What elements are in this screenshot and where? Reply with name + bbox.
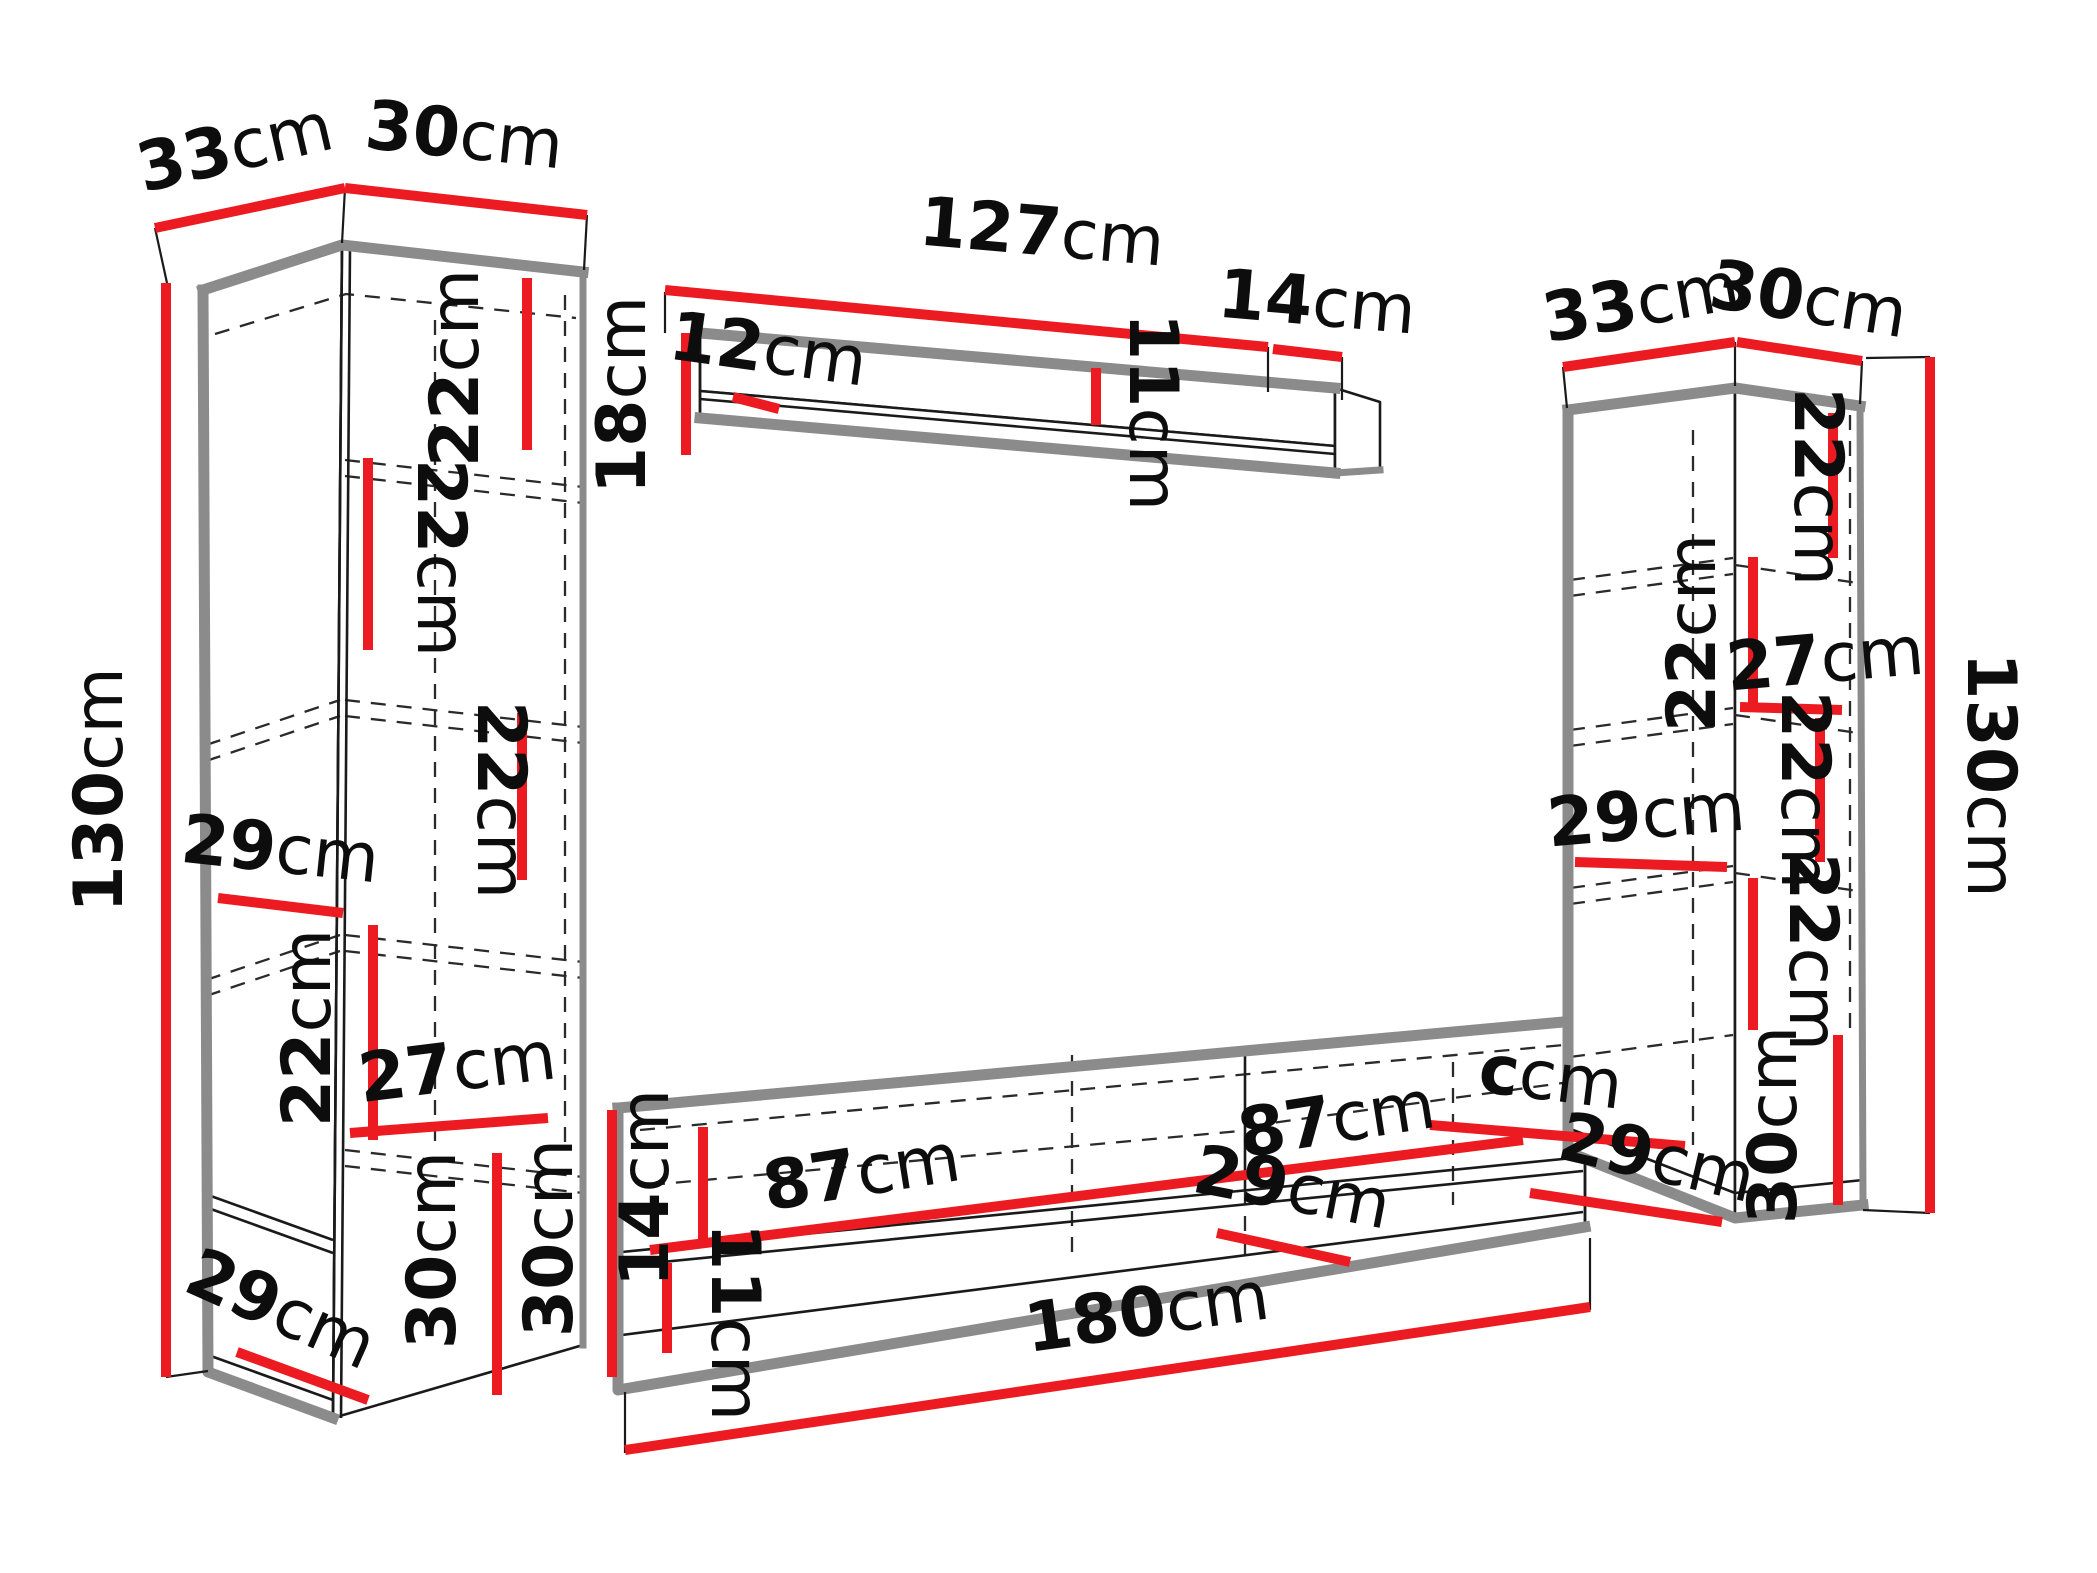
dim-right-cabinet-inner-width: 27cm [1723,612,1927,708]
dim-left-cabinet-height: 130cm [60,667,139,913]
dim-left-cabinet-gap4: 22cm [268,929,347,1127]
dim-left-cabinet-gap2: 22cm [401,459,480,657]
dim-wall-shelf-end-depth: 14cm [1215,255,1419,351]
dim-wall-shelf-height: 18cm [583,296,662,494]
furniture-dimension-drawing: 33cm 30cm 130cm 22cm 22cm 22cm 22cm 29cm… [0,0,2097,1573]
dim-left-cabinet-width: 30cm [362,86,567,185]
dim-wall-shelf-length: 127cm [916,183,1168,283]
dim-wall-shelf-back-height: 11cm [1113,313,1192,511]
dim-right-cabinet-width: 30cm [1704,245,1912,354]
dim-left-cabinet-gap3: 22cm [461,701,540,899]
dim-right-cabinet-bottom-height: 30cm [1734,1026,1813,1224]
dim-tv-front-height: 14cm [606,1089,685,1287]
dim-left-cabinet-bottom-height: 30cm [393,1151,472,1349]
dim-tv-open-height: 11cm [695,1223,774,1421]
dim-wall-shelf-side-depth: 12cm [664,297,871,403]
dim-tv-stand-height: 30cm [510,1139,589,1337]
dim-left-cabinet-gap1: 22cm [416,269,495,467]
dim-right-cabinet-gap4: 22cm [1773,853,1852,1051]
dim-right-cabinet-gap1: 22cm [1778,388,1857,586]
diagram-page: 33cm 30cm 130cm 22cm 22cm 22cm 22cm 29cm… [0,0,2097,1573]
dim-right-cabinet-height: 130cm [1951,652,2030,898]
dim-right-cabinet-gap2: 22cm [1653,534,1732,732]
